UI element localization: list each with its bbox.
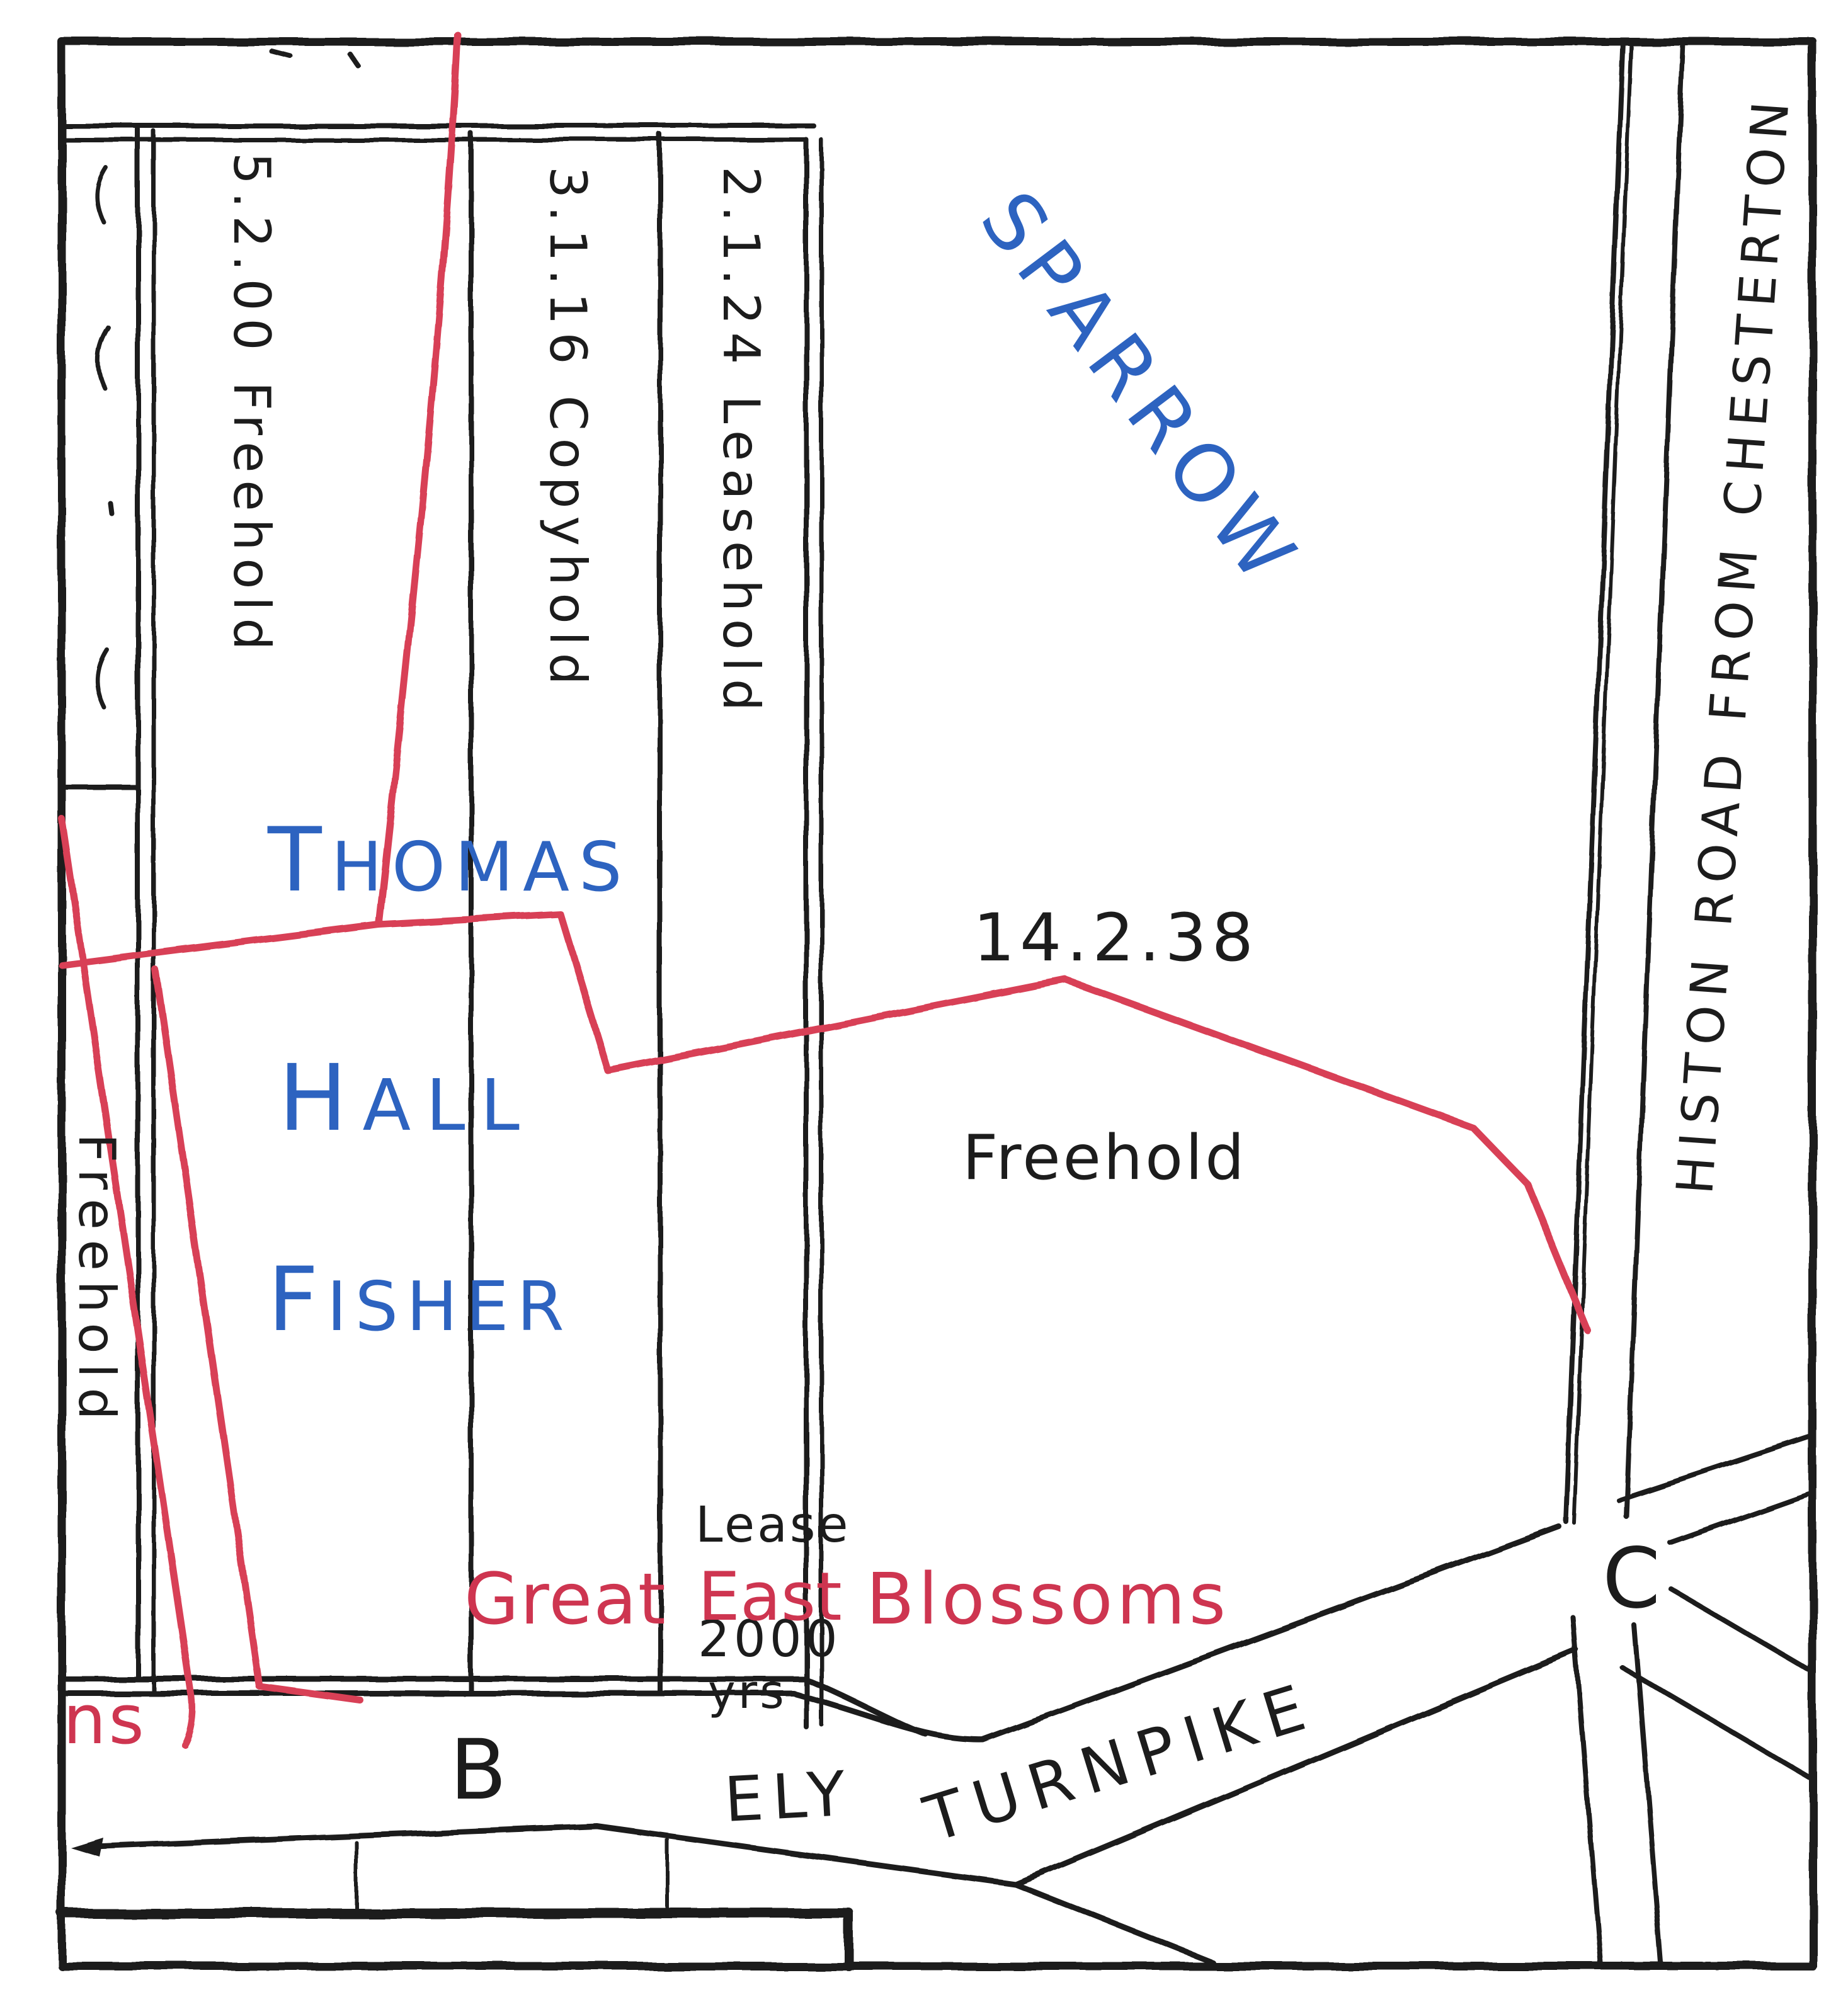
road-arrowhead	[71, 1838, 103, 1857]
turnpike-bottom-edge	[94, 1826, 1015, 1884]
owner-name-line-2: HALL	[278, 1045, 535, 1152]
red-field-name-great: Great	[464, 1559, 667, 1641]
strip-label-copyhold: 3.1.16 Copyhold	[539, 166, 597, 692]
strip-label-freehold: 5.2.00 Freehold	[222, 152, 281, 657]
histon-road-right-line	[1626, 43, 1683, 1516]
left-strip-tenure-label: Freehold	[67, 1134, 126, 1430]
road-label-histon: HISTON ROAD FROM CHESTERTON	[1665, 91, 1801, 1197]
road-label-ely: ELY	[722, 1758, 855, 1836]
field-name-sparrow: SPARROW	[962, 175, 1319, 605]
bottom-plot-outline	[62, 1913, 849, 1966]
red-field-name-blossoms: Blossoms	[866, 1559, 1229, 1641]
southeast-road-top-line	[1672, 1590, 1809, 1670]
northeast-road-top-line	[1619, 1437, 1809, 1500]
scanned-field-map-page: { "fields": { "north_field_name": "SPARR…	[0, 0, 1848, 2002]
cut-off-label-fragments	[97, 168, 112, 708]
area-value-label: 14.2.38	[973, 899, 1258, 976]
south-road-left-line	[1573, 1617, 1600, 1962]
stray-pen-marks	[272, 52, 359, 67]
red-boundary-north-spur	[379, 35, 458, 924]
side-road-lower-arm	[1015, 1884, 1212, 1962]
red-fragment-label: ns	[63, 1681, 147, 1760]
lease-note-word: Lease	[695, 1497, 851, 1554]
southeast-road-bottom-line	[1623, 1668, 1809, 1777]
marker-c: C	[1602, 1530, 1660, 1627]
owner-name-line-1: THOMAS	[267, 809, 632, 912]
lease-term-unit: yrs	[708, 1665, 787, 1719]
northeast-road-bottom-line	[1670, 1494, 1809, 1543]
strip-label-leasehold: 2.1.24 Leasehold	[712, 166, 770, 719]
histon-road-left-line-b	[1574, 43, 1631, 1523]
red-field-name-east: East	[698, 1558, 842, 1635]
owner-name-line-3: FISHER	[268, 1249, 573, 1351]
road-label-turnpike: TURNPIKE	[916, 1668, 1324, 1857]
tenure-label-freehold: Freehold	[962, 1122, 1246, 1194]
marker-b: B	[450, 1722, 507, 1819]
field-map-canvas: SPARROW THOMAS HALL FISHER 14.2.38 Freeh…	[0, 0, 1848, 2002]
